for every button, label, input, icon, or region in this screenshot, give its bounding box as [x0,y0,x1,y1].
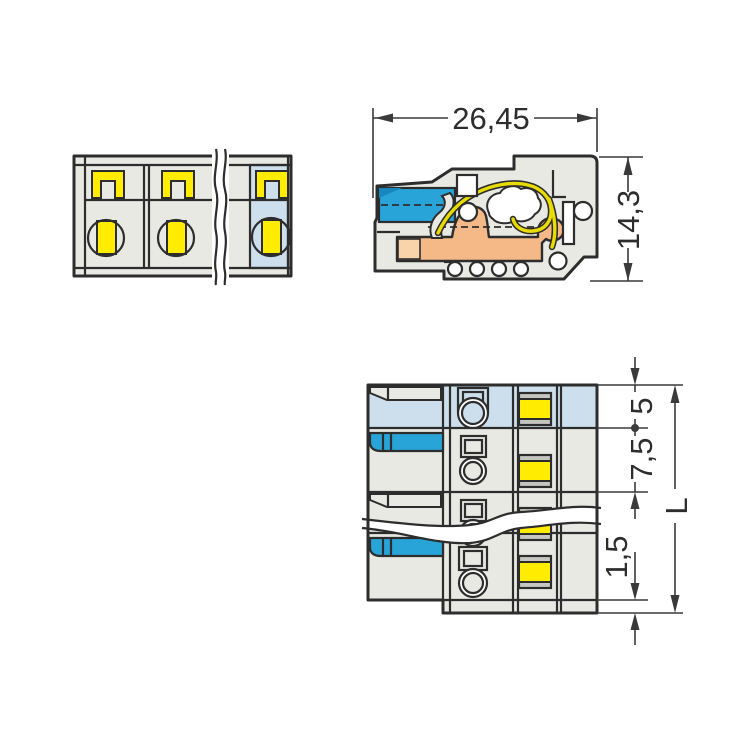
housing-slot [563,202,574,244]
dimension-total-length: L [659,385,694,613]
top-view: 5 7,5 1,5 L [362,357,694,645]
latch-strip-3 [370,494,441,507]
marker-last [519,562,551,582]
dimension-first-pole-offset-label: 5 [624,397,659,414]
front-view [74,148,291,286]
wire-entry-spring-2 [167,221,186,254]
housing-square-hole [457,175,477,196]
wire-entry-spring-1 [97,221,116,254]
connector-drawing-svg: 26,45 14,3 [0,0,750,750]
marker-1 [519,399,551,419]
side-section-view: 26,45 14,3 [373,101,646,281]
dimension-height-label: 14,3 [611,190,646,250]
busbar-cut-face [398,239,420,259]
front-break-lines [212,148,229,286]
wire-entry-spring-last [262,220,281,254]
dimension-end-offset-label: 1,5 [599,535,634,578]
technical-drawing-page: 26,45 14,3 [0,0,750,750]
dimension-width-label: 26,45 [452,101,530,136]
dimension-end-offset: 1,5 [599,535,640,645]
dimension-pole-pitch: 7,5 [624,428,659,519]
latch-strip-1 [370,387,441,400]
top-end-plate-bg [443,600,597,613]
front-push-buttons [92,171,288,198]
dimension-first-pole-offset: 5 [624,357,659,432]
wire-funnel-2 [370,433,443,451]
dimension-pole-pitch-label: 7,5 [624,437,659,480]
marker-2 [519,461,551,481]
dimension-total-length-label: L [659,497,694,514]
